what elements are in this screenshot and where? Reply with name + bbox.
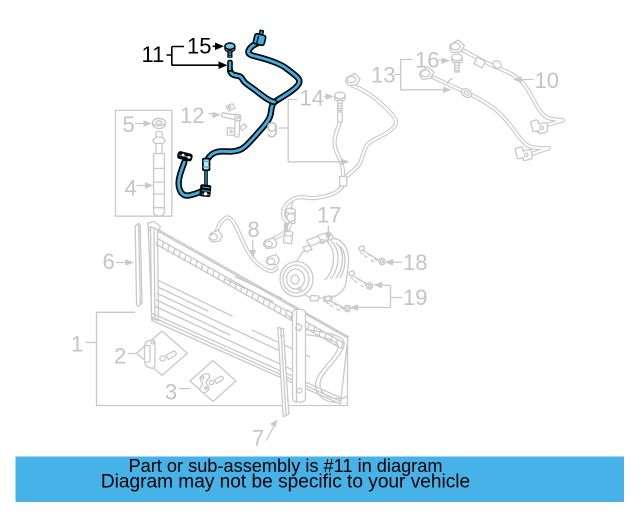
svg-text:14: 14 bbox=[300, 86, 324, 111]
svg-text:1: 1 bbox=[71, 332, 83, 357]
svg-text:17: 17 bbox=[317, 203, 341, 228]
svg-text:12: 12 bbox=[180, 103, 204, 128]
svg-text:13: 13 bbox=[371, 63, 395, 88]
svg-text:Diagram may not be specific to: Diagram may not be specific to your vehi… bbox=[101, 471, 470, 492]
svg-text:11: 11 bbox=[142, 42, 165, 67]
svg-text:2: 2 bbox=[114, 344, 126, 369]
svg-text:10: 10 bbox=[535, 68, 559, 93]
svg-text:18: 18 bbox=[403, 250, 427, 275]
svg-text:19: 19 bbox=[403, 285, 427, 310]
svg-text:6: 6 bbox=[103, 249, 115, 274]
svg-text:8: 8 bbox=[248, 217, 260, 242]
svg-text:4: 4 bbox=[125, 176, 137, 201]
svg-text:5: 5 bbox=[123, 112, 135, 137]
svg-text:3: 3 bbox=[165, 380, 177, 405]
svg-text:7: 7 bbox=[252, 426, 264, 451]
svg-text:16: 16 bbox=[415, 48, 439, 73]
svg-text:9: 9 bbox=[266, 118, 278, 143]
svg-text:15: 15 bbox=[187, 34, 211, 59]
